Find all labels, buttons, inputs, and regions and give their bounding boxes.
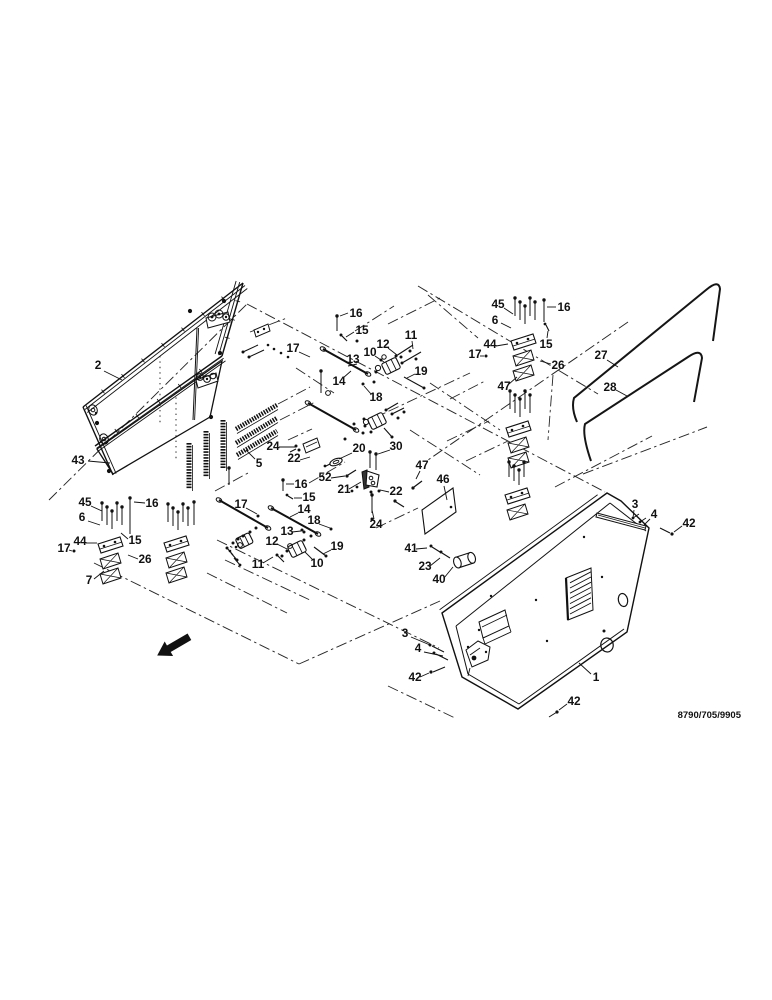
svg-text:7: 7 bbox=[86, 573, 93, 587]
svg-text:24: 24 bbox=[369, 517, 383, 531]
svg-text:42: 42 bbox=[567, 694, 581, 708]
svg-text:40: 40 bbox=[432, 572, 446, 586]
svg-text:1: 1 bbox=[593, 670, 600, 684]
svg-text:18: 18 bbox=[307, 513, 321, 527]
svg-text:46: 46 bbox=[436, 472, 450, 486]
svg-text:19: 19 bbox=[414, 364, 428, 378]
svg-text:16: 16 bbox=[145, 496, 159, 510]
svg-text:47: 47 bbox=[497, 379, 511, 393]
svg-text:42: 42 bbox=[682, 516, 696, 530]
svg-text:12: 12 bbox=[376, 337, 390, 351]
svg-text:45: 45 bbox=[491, 297, 505, 311]
svg-text:30: 30 bbox=[389, 439, 403, 453]
svg-text:45: 45 bbox=[78, 495, 92, 509]
svg-text:12: 12 bbox=[265, 534, 279, 548]
svg-text:43: 43 bbox=[71, 453, 85, 467]
svg-text:22: 22 bbox=[287, 451, 301, 465]
svg-text:13: 13 bbox=[280, 524, 294, 538]
svg-text:26: 26 bbox=[138, 552, 152, 566]
svg-text:27: 27 bbox=[594, 348, 608, 362]
svg-text:6: 6 bbox=[79, 510, 86, 524]
svg-text:19: 19 bbox=[330, 539, 344, 553]
svg-text:24: 24 bbox=[266, 439, 280, 453]
svg-text:44: 44 bbox=[73, 534, 87, 548]
svg-text:52: 52 bbox=[318, 470, 332, 484]
svg-text:17: 17 bbox=[57, 541, 71, 555]
svg-text:17: 17 bbox=[286, 341, 300, 355]
svg-text:17: 17 bbox=[468, 347, 482, 361]
svg-text:44: 44 bbox=[483, 337, 497, 351]
svg-text:5: 5 bbox=[256, 456, 263, 470]
svg-text:42: 42 bbox=[408, 670, 422, 684]
svg-text:22: 22 bbox=[389, 484, 403, 498]
svg-text:14: 14 bbox=[332, 374, 346, 388]
svg-text:15: 15 bbox=[128, 533, 142, 547]
svg-text:15: 15 bbox=[539, 337, 553, 351]
svg-text:23: 23 bbox=[418, 559, 432, 573]
svg-text:18: 18 bbox=[369, 390, 383, 404]
svg-text:47: 47 bbox=[415, 458, 429, 472]
svg-text:16: 16 bbox=[294, 477, 308, 491]
svg-text:6: 6 bbox=[492, 313, 499, 327]
svg-text:4: 4 bbox=[651, 507, 658, 521]
svg-text:10: 10 bbox=[363, 345, 377, 359]
svg-text:8790/705/9905: 8790/705/9905 bbox=[678, 710, 742, 721]
svg-text:26: 26 bbox=[551, 358, 565, 372]
svg-text:21: 21 bbox=[337, 482, 351, 496]
svg-text:16: 16 bbox=[349, 306, 363, 320]
svg-text:4: 4 bbox=[415, 641, 422, 655]
svg-text:13: 13 bbox=[346, 352, 360, 366]
svg-text:3: 3 bbox=[632, 497, 639, 511]
svg-text:20: 20 bbox=[352, 441, 366, 455]
svg-text:15: 15 bbox=[355, 323, 369, 337]
svg-text:11: 11 bbox=[252, 557, 265, 571]
svg-text:17: 17 bbox=[234, 497, 248, 511]
svg-text:16: 16 bbox=[557, 300, 571, 314]
svg-text:10: 10 bbox=[310, 556, 324, 570]
svg-text:3: 3 bbox=[402, 626, 409, 640]
svg-text:2: 2 bbox=[95, 358, 102, 372]
svg-text:28: 28 bbox=[603, 380, 617, 394]
svg-text:41: 41 bbox=[404, 541, 418, 555]
svg-text:11: 11 bbox=[405, 328, 418, 342]
